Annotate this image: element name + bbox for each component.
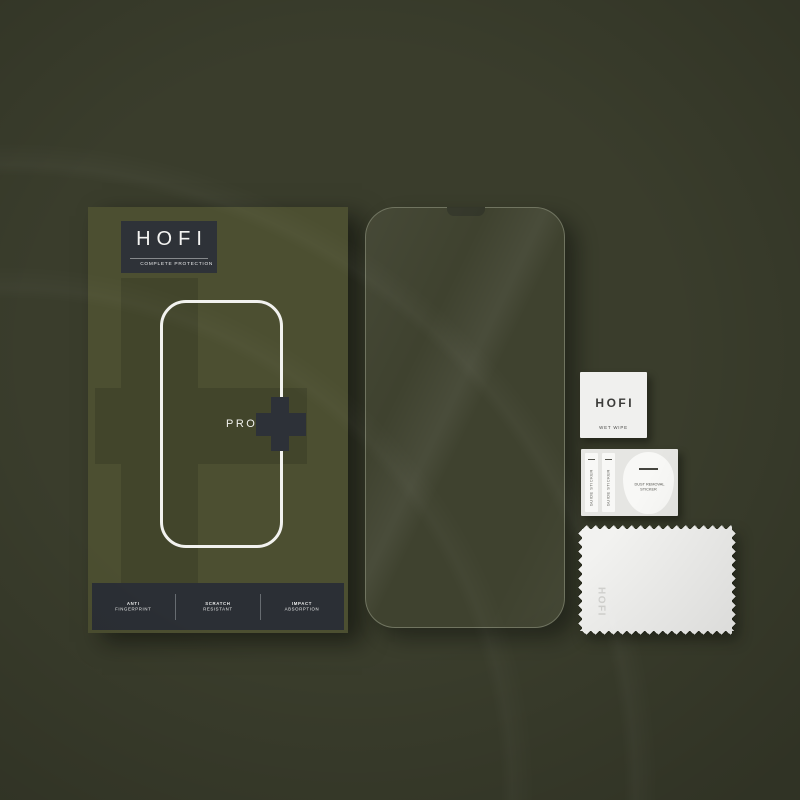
brand-logo: HOFI bbox=[121, 228, 217, 250]
cloth-brand-logo: HOFI bbox=[593, 586, 607, 619]
feature-line1: SCRATCH bbox=[203, 601, 233, 607]
guide-sticker: GUIDE STICKER bbox=[602, 453, 615, 512]
feature-line1: IMPACT bbox=[285, 601, 320, 607]
guide-sticker-label: GUIDE STICKER bbox=[590, 469, 594, 506]
feature-scratch-resistant: SCRATCH RESISTANT bbox=[176, 598, 259, 616]
sticker-card: GUIDE STICKER GUIDE STICKER DUST REMOVAL… bbox=[581, 449, 678, 516]
wet-wipe-label: WET WIPE bbox=[595, 425, 632, 430]
dust-removal-label-line2: STICKER bbox=[634, 487, 662, 492]
sticker-pull-line bbox=[639, 468, 658, 470]
sticker-pull-line bbox=[605, 459, 612, 460]
feature-line2: FINGERPRINT bbox=[116, 607, 152, 613]
brand-tagline: COMPLETE PROTECTION bbox=[140, 261, 198, 266]
sticker-pull-line bbox=[588, 459, 595, 460]
guide-sticker: GUIDE STICKER bbox=[585, 453, 598, 512]
plus-icon bbox=[256, 413, 306, 436]
feature-impact-absorption: IMPACT ABSORPTION bbox=[261, 598, 344, 616]
notch-cutout bbox=[447, 207, 485, 216]
feature-line1: ANTI bbox=[116, 601, 152, 607]
guide-sticker-label: GUIDE STICKER bbox=[607, 469, 611, 506]
wet-wipe-brand: HOFI bbox=[580, 396, 647, 410]
dust-removal-sticker: DUST REMOVAL STICKER bbox=[623, 452, 674, 514]
feature-line2: RESISTANT bbox=[203, 607, 233, 613]
pro-label: PRO bbox=[226, 418, 257, 430]
product-photo-stage: HOFI COMPLETE PROTECTION PRO ANTI FINGER… bbox=[0, 0, 800, 800]
label-divider bbox=[130, 258, 208, 259]
tempered-glass-protector bbox=[365, 207, 565, 628]
feature-line2: ABSORPTION bbox=[285, 607, 320, 613]
wet-wipe-sachet: HOFI WET WIPE bbox=[580, 372, 647, 438]
feature-anti-fingerprint: ANTI FINGERPRINT bbox=[92, 598, 175, 616]
packaging-box: HOFI COMPLETE PROTECTION PRO ANTI FINGER… bbox=[88, 207, 348, 633]
microfiber-cloth: HOFI bbox=[578, 525, 736, 635]
features-strip: ANTI FINGERPRINT SCRATCH RESISTANT IMPAC… bbox=[92, 583, 344, 630]
brand-label-panel: HOFI COMPLETE PROTECTION bbox=[121, 221, 217, 273]
